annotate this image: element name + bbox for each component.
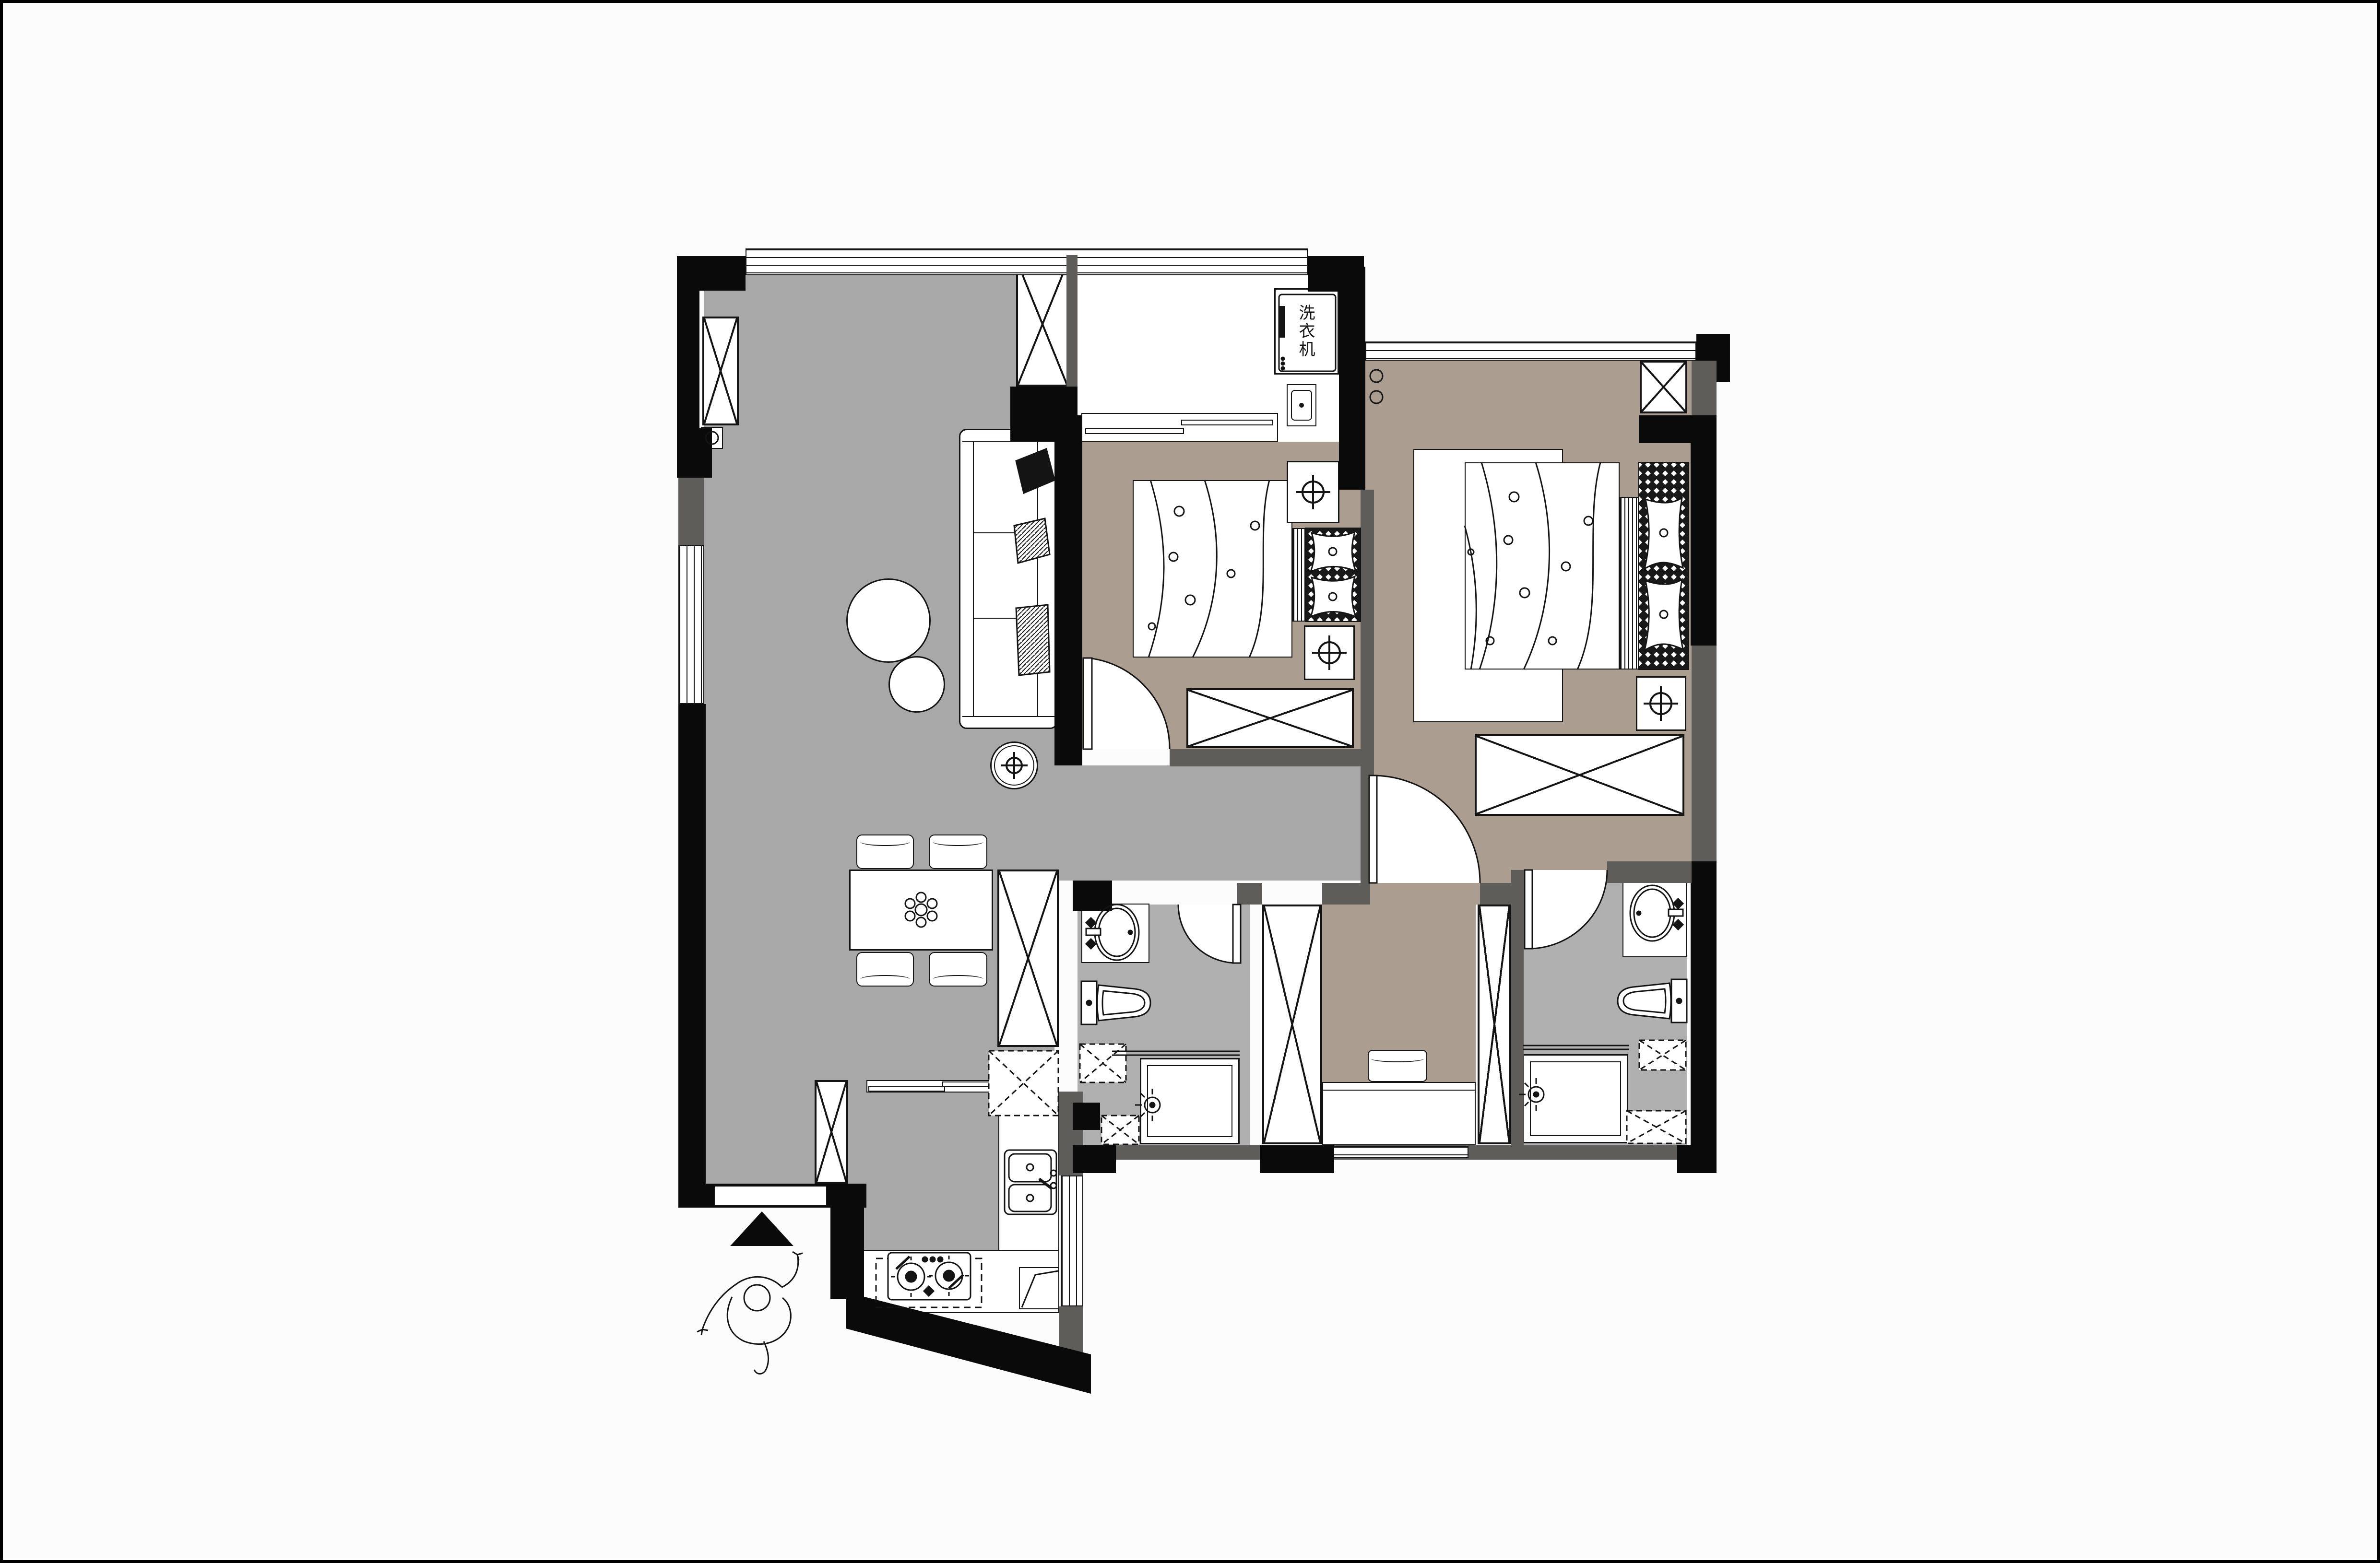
shower-head-bath-right <box>1519 1078 1544 1111</box>
shower-glass-bath-left <box>1112 1051 1240 1055</box>
door-bedroom-small <box>1083 658 1170 749</box>
door-bedroom-master <box>1369 776 1480 883</box>
dashed-box-bath-right-1 <box>1639 1040 1686 1070</box>
dashed-box-bath-left-1 <box>1080 1044 1126 1082</box>
kitchen-corner-diagonal <box>1022 1271 1058 1307</box>
kitchen-sink <box>1005 1150 1056 1214</box>
toilet-bath-right <box>1618 979 1687 1022</box>
sink-bath-left <box>1086 905 1139 960</box>
balcony-basin-dot <box>1299 403 1304 408</box>
door-bathroom-right <box>1525 870 1607 949</box>
bed-master-duvet <box>1465 462 1600 670</box>
cabinet-small-box-circle <box>706 432 718 444</box>
dashed-box-bath-left-2 <box>1101 1116 1139 1144</box>
dashed-boxes <box>989 1040 1686 1144</box>
crosshair-ceiling-lamp <box>1001 752 1028 779</box>
plan-overlay <box>3 3 2380 1563</box>
entry-arrow-icon <box>730 1211 793 1246</box>
shower-glass-bath-right <box>1523 1046 1629 1049</box>
table-flower-icon <box>905 893 937 927</box>
crosshair-ac-master <box>1644 686 1678 721</box>
bed-small-duvet <box>1149 480 1269 658</box>
toilet-bath-left <box>1081 981 1150 1024</box>
crosshair-ac-bed-small-bottom <box>1312 635 1347 670</box>
sink-bath-right <box>1630 885 1683 941</box>
door-bathroom-left <box>1178 905 1241 963</box>
floor-plan-canvas: 洗衣机 <box>0 0 2380 1563</box>
sofa-pillows <box>1014 449 1054 675</box>
dashed-box-fridge <box>989 1051 1058 1116</box>
crosshair-ac-bed-small-top <box>1296 475 1330 509</box>
dashed-box-bath-right-2 <box>1627 1111 1686 1143</box>
person-figure-icon <box>697 1252 803 1374</box>
washing-machine-details <box>1279 294 1336 371</box>
gas-cooktop <box>888 1253 971 1300</box>
pipe-circles <box>1370 370 1383 403</box>
